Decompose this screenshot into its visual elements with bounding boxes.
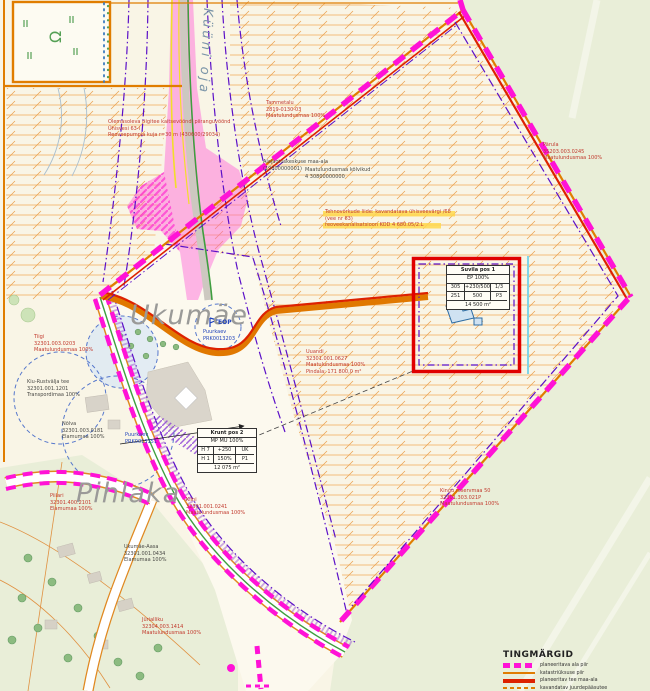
legend-item: planeeritava ala piir — [503, 663, 648, 668]
spec-table-krunt-pos2: Krunt pos 2 MP MU 100% H 7+250UK H 1150%… — [197, 428, 257, 473]
planned-building — [474, 318, 482, 325]
legend: TINGMÄRGID planeeritava ala piir katastr… — [503, 650, 648, 691]
marsh-symbol: Ω — [46, 31, 65, 43]
table-cell: H 1 — [198, 455, 214, 464]
table-cell: +250 — [214, 447, 236, 456]
table-cell: 500 — [465, 292, 491, 301]
legend-label: kavandatav juurdepääsutee — [540, 686, 607, 691]
spec-table-suvila-pos1: Suvila pos 1 EP 100% 305+230/5001/3 2515… — [446, 265, 510, 310]
parcel-top-left: Ω — [13, 2, 110, 82]
table-title: Krunt pos 2 — [198, 429, 256, 438]
table-cell: UK — [236, 447, 254, 456]
table-cell: P1 — [236, 455, 254, 464]
table-cell: H 7 — [198, 447, 214, 456]
table-area: 14 500 m² — [447, 301, 509, 309]
table-cell: 305 — [447, 284, 465, 293]
table-title: Suvila pos 1 — [447, 266, 509, 275]
legend-item: kavandatav juurdepääsutee — [503, 686, 648, 691]
legend-label: planeeritav tee maa-ala — [540, 678, 598, 683]
legend-swatch-cadastral — [503, 672, 535, 674]
table-cell: 150% — [214, 455, 236, 464]
table-cell: 1/3 — [491, 284, 507, 293]
legend-item: katastriüksuse piir — [503, 671, 648, 676]
table-subtitle: MP MU 100% — [198, 438, 256, 447]
legend-title: TINGMÄRGID — [503, 650, 648, 660]
table-cell: 251 — [447, 292, 465, 301]
table-cell: P3 — [491, 292, 507, 301]
legend-item: planeeritav tee maa-ala — [503, 678, 648, 683]
legend-swatch-road — [503, 679, 535, 683]
table-subtitle: EP 100% — [447, 275, 509, 284]
legend-label: planeeritava ala piir — [540, 663, 588, 668]
legend-label: katastriüksuse piir — [540, 671, 584, 676]
legend-swatch-boundary — [503, 663, 535, 668]
table-area: 12 075 m² — [198, 464, 256, 472]
map-drawing: Ω — [0, 0, 650, 691]
legend-swatch-access — [503, 687, 535, 689]
table-cell: +230/500 — [465, 284, 491, 293]
detail-plan-map: Ω Küüni oja Ukumäe Pihlaka Olemasoleva r… — [0, 0, 650, 691]
